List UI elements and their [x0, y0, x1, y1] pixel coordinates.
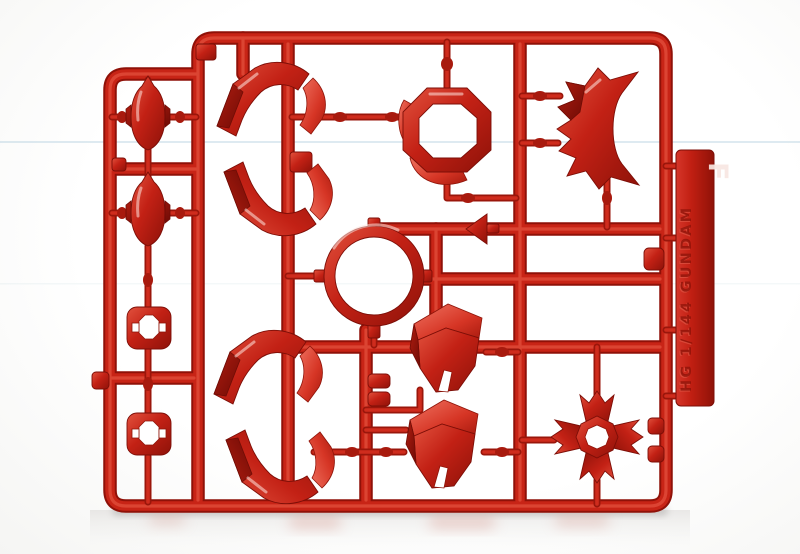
- octagonal-collar-part: [399, 88, 491, 184]
- runner-letter: F: [702, 162, 733, 181]
- chest-armor-part-1: [410, 304, 482, 392]
- capsule-pod-part-1: [126, 76, 170, 150]
- photo-stage: F HG 1/144 GUNDAM HG 1/144 GUNDAM: [0, 0, 800, 554]
- socket-plate-part-1: [127, 307, 171, 349]
- runner-id-tab: F HG 1/144 GUNDAM HG 1/144 GUNDAM: [676, 150, 733, 406]
- runner-embossed-text: HG 1/144 GUNDAM: [679, 206, 695, 392]
- center-ring-part: [314, 218, 432, 338]
- sprue-photo: F HG 1/144 GUNDAM HG 1/144 GUNDAM: [0, 0, 800, 554]
- curved-armor-part-2: [224, 162, 332, 236]
- arrow-clip-part: [466, 214, 499, 244]
- spiked-crest-part: [557, 68, 639, 189]
- floor-shadow: [90, 506, 690, 554]
- socket-plate-part-2: [127, 413, 171, 455]
- capsule-pod-part-2: [126, 172, 170, 246]
- curved-armor-part-4: [226, 430, 334, 504]
- cross-thruster-part: [551, 391, 643, 483]
- curved-armor-part-1: [217, 62, 325, 136]
- background-seam-line: [0, 141, 800, 143]
